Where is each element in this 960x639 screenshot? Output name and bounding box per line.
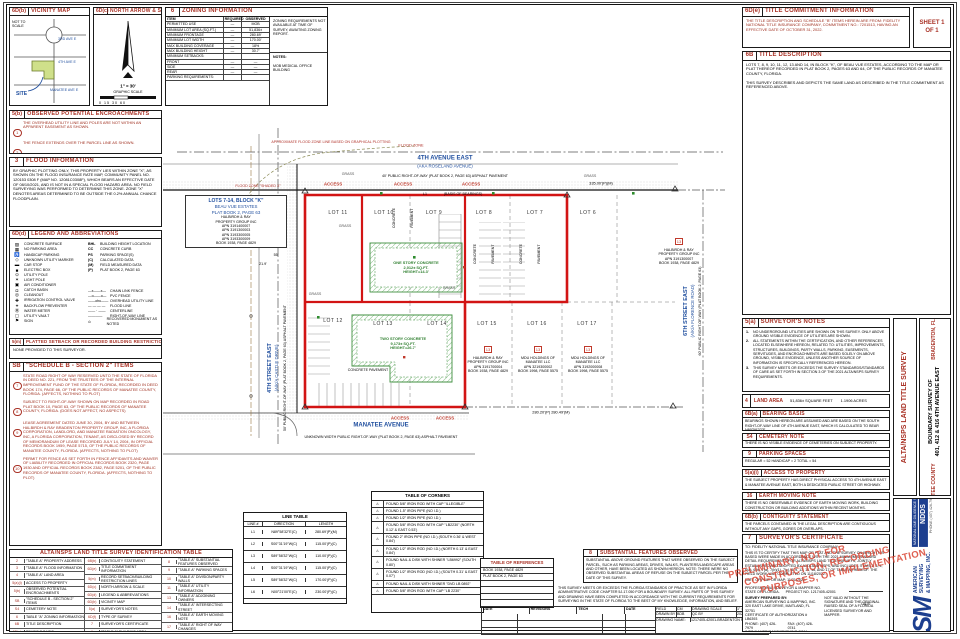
id-row: 13"TABLE A" ADJOINING OWNERS	[162, 594, 232, 604]
reference-row	[481, 587, 553, 594]
reference-row	[481, 581, 553, 588]
zoning-required: —	[224, 65, 243, 69]
panel-north-arrow: 6D(c)NORTH ARROW & SCALE 1" = 30' GRAPHI…	[93, 7, 162, 106]
map-lot-13: LOT 13	[373, 321, 393, 327]
zoning-item: MAX BUILDING HEIGHT	[166, 49, 224, 53]
scale-ticks: 0 15 30 60	[99, 101, 126, 105]
panel-parking-spaces: 9PARKING SPACES REGULAR = 52 HANDICAP = …	[742, 450, 890, 467]
line-length: 110.00'(P)(C)	[306, 554, 346, 558]
id-code: 11	[162, 586, 177, 590]
line-row: L4 S00°31'19"W(C) 115.00'(P)(C)	[244, 563, 346, 575]
id-code: 2	[10, 559, 25, 563]
legend-symbol-label: AIR CONDITIONER	[24, 283, 56, 287]
id-row: 6TABLE "A" ZONING INFORMATION	[10, 614, 84, 621]
asm-name-line: SURVEYING	[919, 552, 925, 593]
id-code: 8	[162, 560, 177, 564]
cemetery-body: THERE IS NO VISIBLE EVIDENCE OF CEMETERI…	[743, 441, 889, 445]
adjoiner-line: BOOK 1938, PAGE 4829	[463, 369, 513, 373]
corner-row: ⚠︎ FOUND 5/8" IRON ROD WITH CAP "LB 2230…	[372, 588, 483, 595]
standards-statement: THIS SURVEY MEETS OR EXCEEDS THE FLORIDA…	[558, 586, 738, 603]
id-code: 6B	[10, 622, 25, 626]
zoning-observed: 170.00'	[242, 38, 269, 42]
setback-body: NONE PROVIDED TO THIS SURVEYOR.	[10, 346, 161, 355]
id-row: 11"TABLE A" UTILITY INFORMATION	[162, 584, 232, 594]
strip-survey-title: MANATEE COUNTY BOUNDARY SURVEY OF 401, 4…	[919, 318, 951, 496]
vicinity-street-manatee: MANATEE AVE E	[50, 88, 78, 92]
panel-contiguity: 6B(b)CONTIGUITY STATEMENT THE PARCELS CO…	[742, 513, 890, 532]
panel-code: 5(m)	[10, 339, 24, 345]
legend-symbol-label: SIGN	[24, 319, 33, 323]
legend-symbol-label: UTILITY VAULT	[24, 314, 49, 318]
map-building-1-label: ONE STORY CONCRETE2,012± SQ.FT.HEIGHT=14…	[393, 261, 439, 275]
line-row: L3 S89°58'32"W(C) 110.00'(P)(C)	[244, 551, 346, 563]
contiguity-body: THE PARCELS CONTAINED IN THE LEGAL DESCR…	[743, 521, 889, 532]
panel-title: FLOOD INFORMATION	[24, 158, 96, 166]
flood-body: BY GRAPHIC PLOTTING ONLY, THIS PROPERTY …	[10, 167, 161, 204]
zoning-item: MINIMUM FRONTAGE	[166, 33, 224, 37]
map-lot-11: LOT 11	[328, 210, 347, 216]
panel-schedule-b: SB"SCHEDULE B - SECTION 2" ITEMS 7 STATE…	[9, 362, 162, 546]
field-label: FIELD	[656, 607, 677, 611]
line-direction: S89°58'32"W(C)	[263, 554, 306, 558]
legend-symbol-label: CATCH BASIN	[24, 288, 48, 292]
asm-name-line: AMERICAN	[913, 552, 919, 593]
id-row: 5(a)SURVEYOR'S NOTES	[85, 606, 161, 613]
id-row: 3"TABLE A" FLOOD INFORMATION	[10, 565, 84, 572]
zoning-required: —	[224, 70, 243, 74]
revision-col-header: TECH	[577, 607, 625, 614]
id-row: 8"TABLE A" SUBSTANTIAL FEATURES OBSERVED	[162, 558, 232, 568]
id-row: 6D(d)LEGEND & ABBREVIATIONS	[85, 592, 161, 599]
ndds-logo: NDDS	[918, 498, 927, 547]
map-lot-7: LOT 7	[527, 210, 543, 216]
id-table-col1: 2"TABLE A" PROPERTY ADDRESS3"TABLE A" FL…	[10, 558, 85, 632]
id-code: 9	[162, 568, 177, 572]
panel-title: EARTH MOVING NOTE	[757, 493, 819, 499]
line-label: RECOVERED MONUMENT AS NOTED	[107, 317, 161, 326]
map-label-access-2: ACCESS	[394, 181, 412, 187]
panel-id-table: ALTA/NSPS LAND TITLE SURVEY IDENTIFICATI…	[9, 549, 233, 632]
panel-flood: 3FLOOD INFORMATION BY GRAPHIC PLOTTING O…	[9, 157, 162, 227]
panel-code: 6B	[743, 52, 757, 60]
map-lot-15: LOT 15	[477, 321, 497, 327]
survey-map-drawing	[163, 106, 740, 546]
id-code: 6D(f)	[85, 615, 100, 619]
map-label-concrete-1: CONCRETE PAVEMENT	[392, 208, 414, 228]
id-label: SURVEYOR'S CERTIFICATE	[100, 622, 148, 626]
map-label-4th-avenue-aka: (AKA ROSELAND AVENUE)	[417, 163, 473, 169]
adjoiner-lot17: 13 MDU HOLDINGS OFMANATEE LLCAPN 3192000…	[563, 338, 613, 373]
legend-symbol-label: WATER METER	[24, 309, 50, 313]
vicinity-street-3rd: 3RD AVE E	[58, 37, 76, 41]
id-code: 6D(c)	[85, 585, 100, 589]
monument-triangle-icon: ⚠︎	[372, 569, 384, 580]
panel-surveyors-notes: 5(a)SURVEYOR'S NOTES 1. NO UNDERGROUND U…	[742, 318, 890, 392]
id-table-col2: 6B(b)CONTIGUITY STATEMENT6D(e)TITLE COMM…	[85, 558, 162, 632]
schedule-b-text: PERMIT FOR FENCE AS SET FORTH IN FENCE A…	[23, 457, 158, 480]
id-code: 6B(a)	[10, 630, 25, 632]
id-row: 7SURVEYOR'S CERTIFICATE	[85, 621, 161, 628]
abbrev-code: CC	[88, 247, 100, 251]
zoning-item: REAR	[166, 70, 224, 74]
revision-col-header: DATE	[482, 607, 530, 614]
parking-body: REGULAR = 52 HANDICAP = 2 TOTAL = 54	[743, 458, 889, 464]
qc-by-label: QC BY	[692, 612, 737, 616]
zoning-observed: —	[242, 70, 269, 74]
legend-symbol-label: NO PARKING AREA	[24, 247, 57, 251]
id-row: 9"TABLE A" BUILDING AREA	[85, 629, 161, 632]
id-label: BEARING BASIS	[25, 630, 54, 632]
zoning-required: —	[224, 60, 243, 64]
asm-logo-block: ASM AMERICANSURVEYING& MAPPING, INC. NAT…	[893, 498, 951, 632]
id-row: 9"TABLE A" PARKING SPACES	[162, 567, 232, 574]
panel-title: PARKING SPACES	[757, 451, 808, 457]
id-code: 13	[162, 596, 177, 600]
panel-earth-moving: 16EARTH MOVING NOTE THERE IS NO OBSERVAB…	[742, 492, 890, 511]
line-id: L3	[244, 554, 263, 558]
abbrev-label: PARKING SPACE(S)	[100, 253, 134, 257]
encroachment-text: THE OVERHEAD UTILITY LINE AND POLES ARE …	[23, 121, 158, 139]
map-label-4th-avenue-row: 40' PUBLIC RIGHT-OF-WAY (PLAT BOOK 2, PA…	[382, 174, 508, 178]
map-label-concrete-3: CONCRETE PAVEMENT	[519, 244, 541, 264]
line-id: L4	[244, 566, 263, 570]
schedule-b-item: 7 STATE ROAD RIGHT OF WAY RESERVED UNTO …	[13, 374, 158, 397]
note-text: NO UNDERGROUND UTILITIES ARE SHOWN ON TH…	[753, 330, 886, 339]
legend-symbol-label: LIGHT POLE	[24, 278, 45, 282]
zoning-observed: 51,836±	[242, 28, 269, 32]
schedule-b-list: 7 STATE ROAD RIGHT OF WAY RESERVED UNTO …	[10, 372, 161, 486]
panel-code: S4	[743, 434, 757, 440]
certificate-phone: PHONE: (407) 426-7979	[745, 622, 784, 631]
certificate-state: STATE OF FLORIDA.	[745, 590, 780, 594]
adjoiner-line: BOOK 1998, PAGE 5575	[563, 369, 613, 373]
zoning-observed: —	[242, 60, 269, 64]
panel-vicinity-map: 6D(b)VICINITY MAP NOT TO SCALE 3RD AVE E…	[9, 7, 90, 106]
panel-title: OBSERVED POTENTIAL ENCROACHMENTS	[25, 111, 151, 118]
map-label-access-4: ACCESS	[391, 415, 409, 421]
line-id: L6	[244, 590, 263, 594]
id-code: 6D(e)	[85, 567, 100, 571]
asm-logo: ASM	[907, 598, 938, 632]
panel-code: 6D(d)	[10, 231, 29, 238]
line-sample: ⊙	[88, 320, 107, 324]
north-arrow-icon	[108, 19, 148, 79]
zoning-observed	[242, 75, 269, 79]
corner-row: ⚠︎ FOUND 1/2" IRON ROD (NO I.D.) (SOUTH …	[372, 569, 483, 581]
encroachment-number: 1	[13, 129, 22, 138]
id-row: S4CEMETERY NOTE	[10, 606, 84, 613]
panel-title: SURVEYOR'S NOTES	[759, 319, 828, 327]
table-a-13-badge: 13	[534, 346, 542, 353]
id-label: "SCHEDULE B - SECTION 2" ITEMS	[25, 597, 84, 606]
sheet-of: OF 1	[919, 28, 944, 36]
corner-text: FOUND 1/2" IRON ROD (NO I.D.) (SOUTH 0.3…	[384, 569, 483, 580]
abbrev-code: BHL	[88, 242, 100, 246]
zoning-col-required: REQUIRED	[224, 17, 243, 21]
zoning-observed	[242, 54, 269, 58]
graphic-scale-label: GRAPHIC SCALE	[113, 90, 142, 94]
id-label: "TABLE A" LAND AREA	[25, 573, 64, 577]
certificate-auth: CERTIFICATE OF AUTHORIZATION # LB6393	[745, 613, 820, 622]
panel-land-area: 4 LAND AREA 51,836± SQUARE FEET 1.1906 A…	[742, 394, 890, 408]
panel-title: ZONING INFORMATION	[180, 8, 254, 16]
table-of-references: TABLE OF REFERENCES BOOK 1938, PAGE 4829…	[480, 558, 554, 608]
zoning-notes-value: MOB MEDICAL OFFICE BUILDING	[270, 62, 328, 75]
id-label: "TABLE A" RIGHT OF WAY CHANGES	[177, 623, 232, 632]
id-code: 17	[162, 625, 177, 629]
zoning-item: PERMITTED USE	[166, 22, 224, 26]
legend-abbrev-row: BHL BUILDING HEIGHT LOCATION	[88, 242, 161, 247]
certificate-project: PROJECT NO. 1217405-42001	[786, 590, 836, 594]
schedule-b-text: STATE ROAD RIGHT OF WAY RESERVED UNTO TH…	[23, 374, 158, 397]
abbrev-label: CALCULATED DATA	[100, 258, 134, 262]
surveyor-note: 1. NO UNDERGROUND UTILITIES ARE SHOWN ON…	[746, 330, 886, 339]
building-text-line: HEIGHT=26.7'	[380, 346, 426, 351]
corner-text: FOUND 1/2" IRON ROD (NO I.D.) (NORTH 0.1…	[384, 546, 483, 557]
map-label-access-1: ACCESS	[324, 181, 342, 187]
panel-title: CONTIGUITY STATEMENT	[761, 514, 831, 520]
panel-title: BEARING BASIS	[761, 411, 807, 417]
adjoiner-line: BOOK 1998, PAGE 5575	[513, 369, 563, 373]
note-text: ALL STATEMENTS WITHIN THE CERTIFICATION,…	[753, 339, 886, 365]
panel-code: 7	[743, 535, 757, 543]
map-lot-10: LOT 10	[374, 210, 394, 216]
id-row: 6D(e)TITLE COMMITMENT INFORMATION	[85, 565, 161, 575]
legend-symbol-label: CONCRETE SURFACE	[24, 242, 62, 246]
zoning-item: MINIMUM SETBACKS:	[166, 54, 224, 58]
panel-code: 5(a)(i)	[743, 470, 762, 476]
line-label: FLOOD LINE	[110, 304, 131, 308]
legend-symbols: ▨ CONCRETE SURFACE ▦ NO PARKING AREA ♿ H…	[12, 242, 84, 324]
monument-triangle-icon: ⚠︎	[372, 581, 384, 587]
id-label: TABLE "A" ZONING INFORMATION	[25, 615, 84, 619]
sheet-number-box: SHEET 1 OF 1	[913, 7, 951, 48]
certificate-date-label: DATE	[861, 602, 870, 606]
id-table-col3: 8"TABLE A" SUBSTANTIAL FEATURES OBSERVED…	[162, 558, 232, 632]
zoning-item: SIDE	[166, 65, 224, 69]
note-number: 1.	[746, 330, 753, 339]
id-code: 5(m)	[85, 577, 100, 581]
id-label: VICIN­ITY MAP	[100, 600, 125, 604]
zoning-required: —	[224, 38, 243, 42]
id-label: TYPE OF SURVEY	[100, 615, 132, 619]
id-row: SB"SCHEDULE B - SECTION 2" ITEMS	[10, 597, 84, 607]
id-label: NORTH ARROW & SCALE	[100, 585, 144, 589]
panel-bearing-basis: 6B(a)BEARING BASIS BEARINGS SHOWN HEREON…	[742, 410, 890, 431]
vicinity-street-4th: 4TH AVE E	[58, 60, 76, 64]
map-lot-8: LOT 8	[476, 210, 492, 216]
revision-col-header: REVISIONS	[530, 607, 578, 614]
zoning-required: —	[224, 33, 243, 37]
certificate-fax: FAX: (407) 426-0741	[788, 622, 821, 631]
id-label: TITLE COMMITMENT INFORMATION	[100, 565, 161, 574]
panel-title-commitment: 6D(e)TITLE COMMITMENT INFORMATION THE TI…	[742, 7, 910, 48]
map-label-flood-zone: FLOOD ZONE	[398, 144, 423, 149]
abbrev-code: (P)	[88, 268, 100, 272]
map-label-grass-1: GRASS	[342, 172, 355, 176]
references-rows: BOOK 1938, PAGE 4829PLAT BOOK 2, PAGE 63	[481, 568, 553, 609]
zoning-rows: PERMITTED USE — MOB MINIMUM LOT AREA (SQ…	[166, 22, 269, 80]
abbrev-code: (M)	[88, 263, 100, 267]
zoning-col-item: ITEM	[166, 17, 224, 21]
panel-title: TITLE COMMITMENT INFORMATION	[763, 8, 876, 16]
encroachment-text: THE FENCE EXTENDS OVER THE PARCEL LINE A…	[23, 141, 134, 154]
id-label: "TABLE A" BUILDING AREA	[100, 630, 146, 632]
map-dim-21-9: 21.9'	[259, 262, 267, 266]
panel-code: 3	[10, 158, 24, 166]
county-label: MANATEE COUNTY	[932, 464, 938, 496]
zoning-required	[224, 75, 243, 79]
id-row: 6D(c)NORTH ARROW & SCALE	[85, 584, 161, 591]
panel-title: ACCESS TO PROPERTY	[762, 470, 828, 476]
line-sample: —x——x—	[88, 289, 110, 293]
id-code: 9	[85, 630, 100, 632]
map-label-l1: L1	[423, 192, 427, 196]
zoning-item: FRONT	[166, 60, 224, 64]
zoning-required: —	[224, 49, 243, 53]
survey-sheet: 6D(b)VICINITY MAP NOT TO SCALE 3RD AVE E…	[0, 0, 960, 639]
scale-text: 1" = 30'	[120, 83, 135, 89]
subject-owner-line: BOOK 1938, PAGE 4829	[187, 241, 285, 245]
adjoiner-lot15: 13 HALBIRDH & RAYPROPERTY GROUP INCAPN 3…	[463, 338, 513, 373]
legend-symbol-label: CAR STOP	[24, 263, 42, 267]
abbrev-label: PLAT BOOK 2, PAGE 63	[100, 268, 140, 272]
id-code: 3	[10, 566, 25, 570]
id-row: 14"TABLE A" INTERSECTING STREET	[162, 603, 232, 613]
id-row: 5(b)OBSERVED POTENTIAL ENCROACHMENTS	[10, 587, 84, 597]
abbrev-code: PS	[88, 253, 100, 257]
panel-legend: 6D(d)LEGEND AND ABBREVIATIONS ▨ CONCRETE…	[9, 230, 162, 335]
line-row: L6 N00°21'00"E(C) 230.00'(P)(C)	[244, 587, 346, 599]
map-label-6th-street-row: 60' PUBLIC RIGHT-OF-WAY (PLAT BOOK 2, PA…	[698, 267, 702, 356]
line-label: CHAIN LINK FENCE	[110, 289, 143, 293]
panel-title: SURVEYOR'S CERTIFICATE	[757, 535, 845, 543]
id-label: "TABLE A" INTERSECTING STREET	[177, 603, 232, 612]
map-label-basis-of-bearings: (BASIS OF BEARINGS)	[444, 192, 483, 196]
map-label-grass-2: GRASS	[584, 174, 597, 178]
map-lot-12: LOT 12	[323, 318, 343, 324]
id-code: 4	[10, 573, 25, 577]
zoning-item: MINIMUM LOT AREA (SQ.FT.)	[166, 28, 224, 32]
id-code: 10	[162, 577, 177, 581]
panel-code: 6B(b)	[743, 514, 761, 520]
id-table-title: ALTA/NSPS LAND TITLE SURVEY IDENTIFICATI…	[38, 550, 204, 557]
note-text: THIS SURVEY MEETS OR EXCEEDS THE SURVEY …	[753, 366, 886, 379]
legend-symbol-label: CLEANOUT	[24, 293, 44, 297]
id-code: SB	[10, 599, 25, 603]
map-lot-16: LOT 16	[527, 321, 547, 327]
zoning-item: PARKING REQUIREMENTS:	[166, 75, 224, 79]
survey-map: 4TH AVENUE EAST (AKA ROSELAND AVENUE) 40…	[163, 106, 740, 546]
map-label-access-5: ACCESS	[436, 415, 454, 421]
zoning-observed: MOB	[242, 22, 269, 26]
panel-surveyors-certificate: 7SURVEYOR'S CERTIFICATE TO: FIDELITY NAT…	[742, 534, 890, 632]
title-description-para1: LOTS 7, 8, 9, 10, 11, 12, 13 AND 14, IN …	[743, 61, 950, 79]
zoning-col-observed: OBSERVED	[242, 17, 269, 21]
corner-text: FOUND NAIL & DISK WITH SHINER "LB6992" (…	[384, 557, 483, 568]
line-row: L5 S89°58'32"W(C) 170.00'(P)(C)	[244, 575, 346, 587]
references-title: TABLE OF REFERENCES	[481, 559, 553, 568]
panel-substantial-features: 8SUBSTANTIAL FEATURES OBSERVED SUBSTANTI…	[583, 549, 738, 583]
id-label: CEMETERY NOTE	[25, 607, 57, 611]
line-sample: —o——o—	[88, 294, 110, 298]
panel-code: SB	[10, 363, 24, 371]
id-row: 5(a)(i)ACCESS TO PROPERTY	[10, 580, 84, 587]
id-row: 4"TABLE A" LAND AREA	[10, 572, 84, 579]
drawn-by-label: DRAWN BY	[656, 612, 677, 616]
id-code: 6B(b)	[85, 559, 100, 563]
map-label-4th-avenue: 4TH AVENUE EAST	[417, 155, 472, 163]
table-a-13-badge: 13	[584, 346, 592, 353]
id-label: "TABLE A" SUBSTANTIAL FEATURES OBSERVED	[177, 558, 232, 567]
panel-title: SUBSTANTIAL FEATURES OBSERVED	[598, 550, 700, 556]
id-label: OBSERVED POTENTIAL ENCROACHMENTS	[25, 587, 84, 596]
id-label: "TABLE A" PROPERTY ADDRESS	[25, 559, 82, 563]
line-direction: S00°31'19"W(C)	[263, 566, 306, 570]
legend-symbol-label: BACKFLOW PREVENTER	[24, 304, 67, 308]
map-label-4th-street-row: 50' PUBLIC RIGHT-OF-WAY (PLAT BOOK 2, PA…	[283, 305, 287, 431]
abbrev-label: CONCRETE CURB	[100, 247, 131, 251]
zoning-required: —	[224, 28, 243, 32]
land-area-acres: 1.1906 ACRES	[837, 399, 871, 404]
zoning-observed: —	[242, 65, 269, 69]
id-code: 14	[162, 606, 177, 610]
survey-title: BOUNDARY SURVEY OF	[928, 367, 935, 457]
legend-symbol-label: IRRIGATION CONTROL VALVE	[24, 298, 75, 302]
panel-title: LEGEND AND ABBREVIATIONS	[29, 231, 120, 238]
id-code: S4	[10, 607, 25, 611]
abbrev-label: BUILDING HEIGHT LOCATION	[100, 242, 151, 246]
surveyor-note: 2. ALL STATEMENTS WITHIN THE CERTIFICATI…	[746, 339, 886, 365]
line-sample: —— · ——	[88, 309, 110, 313]
id-label: ACCESS TO PROPERTY	[25, 581, 67, 585]
panel-code: 6D(c)	[94, 8, 108, 14]
panel-title: PLATTED SETBACK OR RECORDED BUILDING RES…	[24, 339, 162, 345]
id-code: 7	[85, 622, 100, 626]
line-label: CENTERLINE	[110, 309, 133, 313]
land-area-sqft: 51,836± SQUARE FEET	[786, 399, 837, 404]
map-lot-17: LOT 17	[577, 321, 597, 327]
legend-line-row: ⊙ RECOVERED MONUMENT AS NOTED	[88, 319, 161, 324]
id-row: 6BTITLE DESCRIPTION	[10, 621, 84, 628]
map-label-concrete-4: CONCRETE PAVEMENT	[348, 368, 388, 372]
asm-phone: PHONE (407) 426-7979	[928, 498, 932, 547]
id-label: TITLE DESCRIPTION	[25, 622, 61, 626]
adjoiner-lot6: 13 HALBIRDH & RAYPROPERTY GROUP INCAPN 3…	[654, 230, 704, 265]
subject-parcel-info-box: LOTS 7-14, BLOCK "K" BEAU VUE ESTATES PL…	[185, 195, 287, 248]
line-id: L5	[244, 578, 263, 582]
zoning-required: —	[224, 44, 243, 48]
abbrev-label: FIELD MEASURED DATA	[100, 263, 142, 267]
survey-address: 401, 412 & 416 4TH AVENUE EAST	[935, 367, 942, 457]
note-number: 3.	[746, 366, 753, 379]
schedule-b-text: LEASE AGREEMENT DATED JUNE 30, 2004, BY …	[23, 421, 158, 454]
id-label: "TABLE A" UTILITY INFORMATION	[177, 584, 232, 593]
alta-survey-type-title: ALTA/NSPS LAND TITLE SURVEY	[901, 351, 909, 463]
drawn-by-value: BDB	[677, 612, 692, 616]
zoning-side-note: ZONING REQUIREMENTS NOT AVAILABLE AT TIM…	[270, 17, 328, 38]
line-direction: S89°58'32"W(C)	[263, 578, 306, 582]
reference-row: BOOK 1938, PAGE 4829	[481, 568, 553, 575]
id-label: CONTIGUITY STATEMENT	[100, 559, 145, 563]
monument-triangle-icon: ⚠︎	[372, 557, 384, 568]
vicinity-site-label: SITE	[16, 91, 27, 97]
id-label: "TABLE A" EARTH MOVING NOTE	[177, 613, 232, 622]
monument-triangle-icon: ⚠︎	[372, 588, 384, 594]
map-label-manatee-row: UNKNOWN WIDTH PUBLIC RIGHT-OF-WAY (PLAT …	[304, 435, 457, 439]
legend-symbol-label: HANDICAP PARKING	[24, 253, 59, 257]
map-lot-14: LOT 14	[427, 321, 447, 327]
